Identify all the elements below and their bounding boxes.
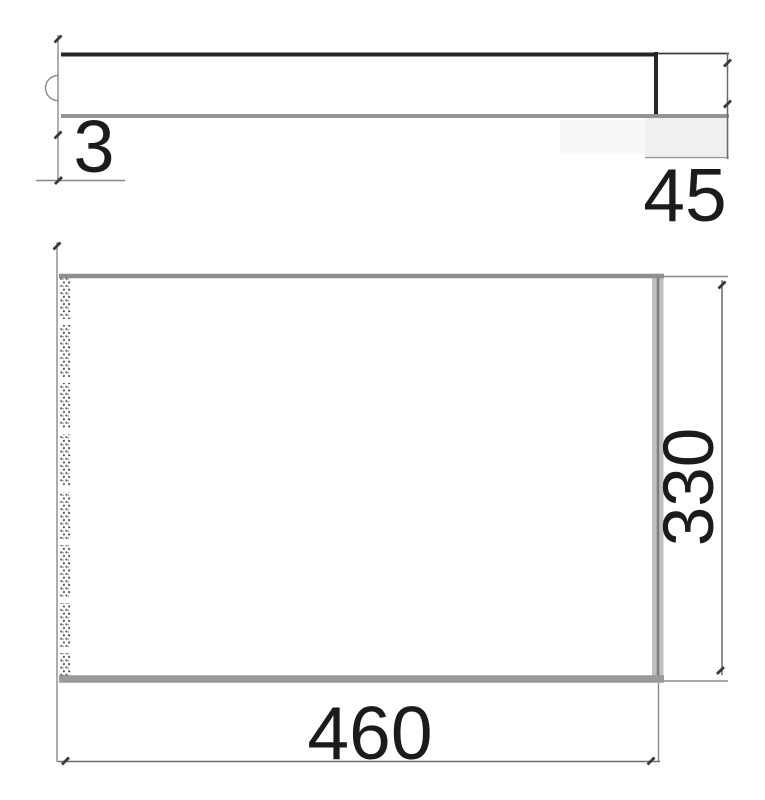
width-dim-label: 460 — [307, 691, 432, 775]
drawing-canvas: 3 45 — [0, 0, 765, 800]
serration-segment — [60, 278, 71, 319]
side-view: 3 45 — [36, 35, 731, 237]
serration-segment — [60, 325, 71, 377]
serration-segment — [60, 383, 71, 428]
hanger-hook-arc — [46, 76, 59, 101]
technical-drawing-svg: 3 45 — [0, 0, 765, 800]
serration-segment — [60, 603, 71, 647]
serration-segment — [60, 545, 71, 597]
height-dim-label: 45 — [643, 153, 726, 237]
thickness-dim-label: 3 — [73, 105, 114, 188]
profile-shadow-fade — [560, 120, 650, 154]
serration-segment — [60, 492, 71, 539]
depth-dim-tick-bottom — [717, 667, 724, 674]
plan-serrated-edge — [60, 278, 71, 676]
profile-shadow — [645, 118, 729, 156]
serration-segment — [60, 434, 71, 486]
serration-segment — [60, 653, 71, 676]
depth-dim-label: 330 — [650, 428, 729, 546]
plan-view: 330 460 — [54, 242, 730, 775]
